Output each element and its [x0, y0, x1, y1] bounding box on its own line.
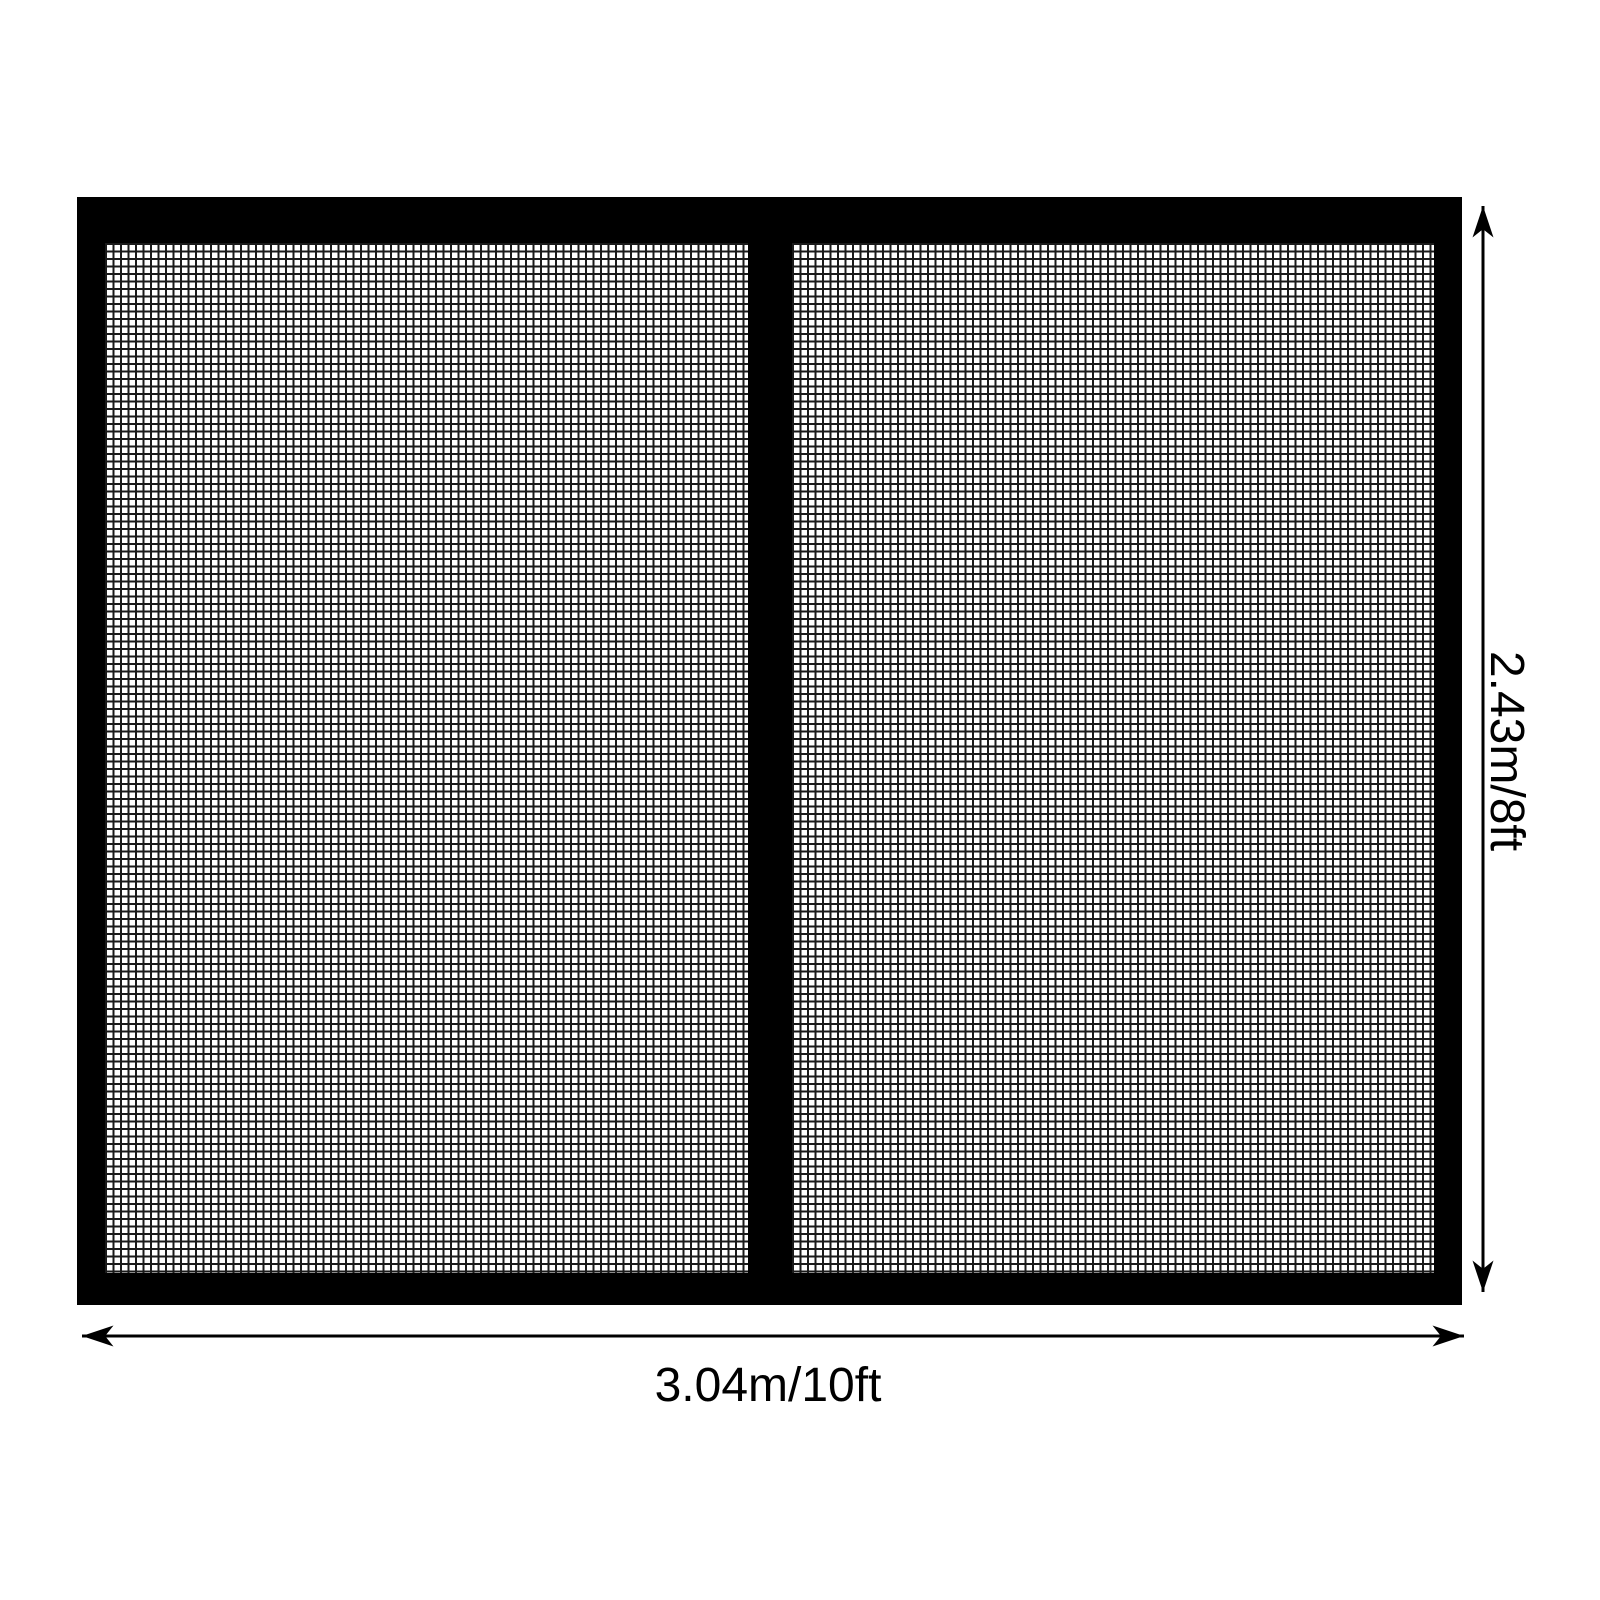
mesh-panel-left [105, 243, 748, 1273]
height-dimension-label: 2.43m/8ft [1482, 651, 1530, 851]
product-dimension-diagram: 2.43m/8ft 3.04m/10ft [0, 0, 1600, 1600]
mesh-screen-frame [77, 197, 1462, 1305]
width-dimension-label: 3.04m/10ft [655, 1362, 882, 1410]
mesh-panel-right [792, 243, 1434, 1273]
